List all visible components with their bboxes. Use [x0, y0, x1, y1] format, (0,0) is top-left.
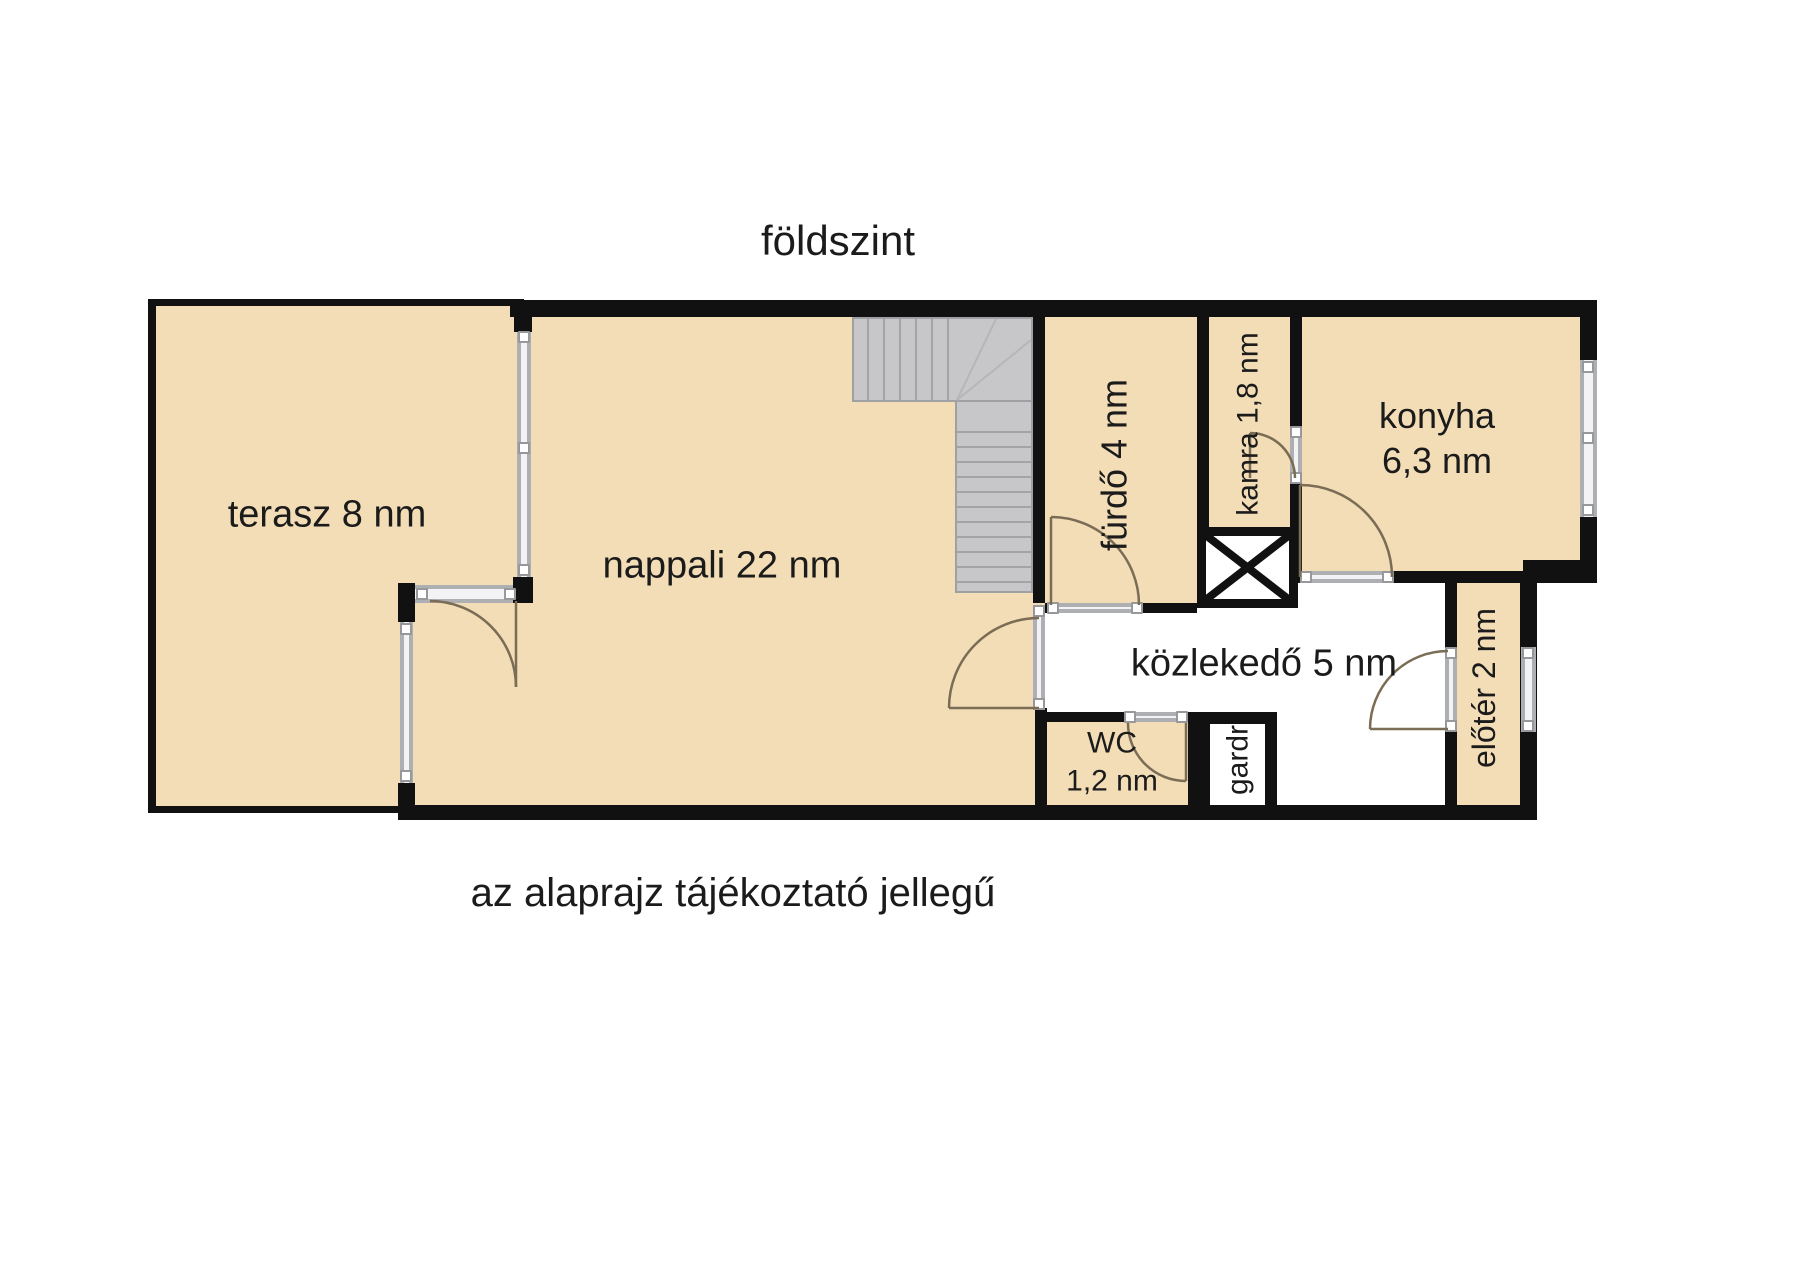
door-handle: [1124, 711, 1136, 723]
floor-plan-canvas: földszint terasz 8 nm nappali 22 nm fürd…: [0, 0, 1809, 1280]
post-terrace-window-mid: [513, 577, 533, 603]
window-handle: [416, 588, 428, 600]
room-label-nappali: nappali 22 nm: [603, 542, 842, 590]
door-opening-konyha: [1300, 571, 1393, 583]
wall-terrace-top: [148, 299, 524, 306]
window-handle: [518, 331, 530, 343]
wall-terrace-left: [148, 299, 156, 813]
wall-furdo-kamra: [1197, 317, 1209, 535]
window-divider: [518, 442, 530, 454]
staircase-lower-run: [955, 400, 1033, 593]
wall-stair-furdo: [1033, 317, 1045, 603]
window-handle: [1582, 361, 1594, 373]
room-label-kozlekedo: közlekedő 5 nm: [1131, 640, 1397, 688]
door-handle: [1382, 571, 1394, 583]
wall-wc-left: [1035, 708, 1047, 805]
door-handle: [1176, 711, 1188, 723]
door-handle: [1033, 698, 1045, 710]
window-divider: [1582, 432, 1594, 444]
room-label-gardrob: gardr: [1219, 725, 1257, 795]
wall-main-top: [510, 300, 1597, 317]
room-label-konyha-name: konyha: [1379, 393, 1495, 438]
room-label-kamra: kamra 1,8 nm: [1229, 332, 1267, 515]
room-label-konyha-area: 6,3 nm: [1379, 438, 1495, 483]
window-handle: [504, 588, 516, 600]
door-opening-eloter: [1445, 648, 1457, 730]
door-opening-nappali: [1033, 605, 1045, 710]
door-handle: [1290, 472, 1302, 484]
door-handle: [1445, 647, 1457, 659]
page-title: földszint: [761, 215, 915, 268]
door-handle: [1033, 605, 1045, 617]
window-handle: [400, 623, 412, 635]
room-label-konyha: konyha 6,3 nm: [1379, 393, 1495, 483]
door-track-terrace: [415, 585, 517, 603]
post-terrace-window-top: [514, 306, 532, 332]
room-label-wc-name: WC: [1066, 725, 1158, 763]
post-terrace-door-left: [398, 583, 415, 622]
staircase-upper-run: [852, 317, 1033, 402]
door-handle: [1300, 571, 1312, 583]
room-label-wc-area: 1,2 nm: [1066, 762, 1158, 800]
wall-main-bottom: [398, 805, 1537, 820]
window-handle: [1522, 647, 1534, 659]
door-handle: [1131, 602, 1143, 614]
door-handle: [1445, 720, 1457, 732]
window-handle: [1522, 720, 1534, 732]
room-label-wc: WC 1,2 nm: [1066, 725, 1158, 800]
window-handle: [518, 564, 530, 576]
post-terrace-window-bottom: [398, 783, 415, 806]
window-handle: [400, 770, 412, 782]
shaft-box: [1197, 527, 1298, 608]
door-handle: [1047, 602, 1059, 614]
door-handle: [1290, 426, 1302, 438]
wall-terrace-bottom: [148, 806, 407, 813]
door-opening-furdo: [1049, 603, 1141, 613]
window-handle: [1582, 504, 1594, 516]
disclaimer-text: az alaprajz tájékoztató jellegű: [471, 868, 996, 918]
room-label-terasz: terasz 8 nm: [228, 491, 427, 539]
window-terrace-lower: [400, 622, 413, 783]
room-kozlekedo-fill-upper: [1298, 583, 1457, 613]
room-label-eloter: előtér 2 nm: [1464, 608, 1504, 768]
room-label-furdo: fürdő 4 nm: [1092, 379, 1137, 551]
outside-area-right: [1537, 583, 1617, 833]
